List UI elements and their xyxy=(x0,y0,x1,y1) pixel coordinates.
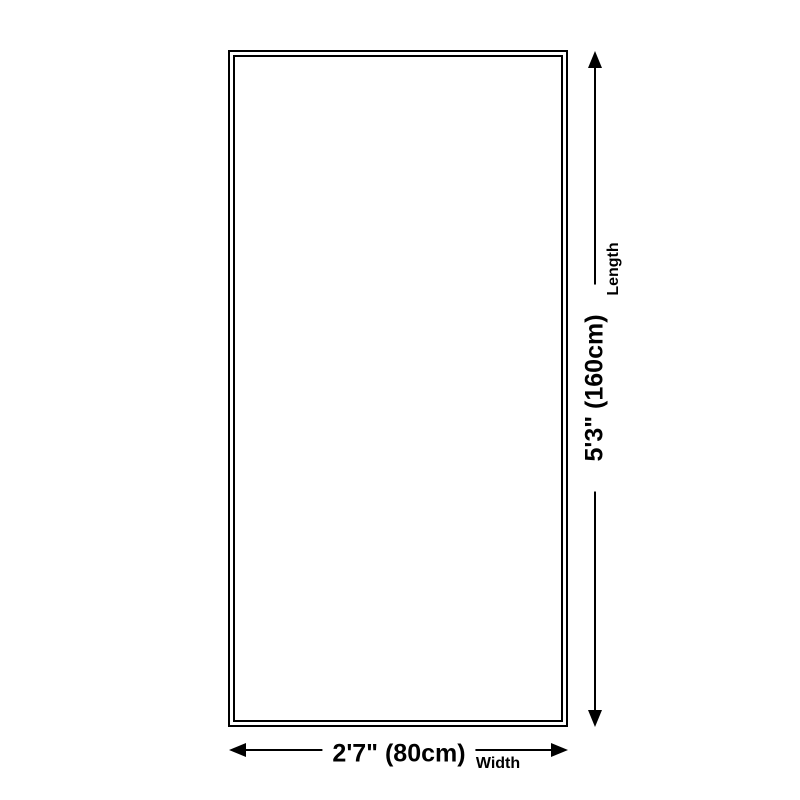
length-axis-label: Length xyxy=(605,242,623,295)
product-dimension-diagram: 5'3" (160cm) Length 2'7" (80cm) Width xyxy=(0,0,800,800)
arrow-left-icon xyxy=(229,743,246,757)
width-axis-label: Width xyxy=(476,755,520,773)
rug-outline xyxy=(228,50,568,727)
length-value-label: 5'3" (160cm) xyxy=(581,284,610,491)
rug-outline-inner-border xyxy=(233,55,563,722)
arrow-down-icon xyxy=(588,710,602,727)
width-value-label: 2'7" (80cm) xyxy=(322,740,475,769)
arrow-up-icon xyxy=(588,51,602,68)
arrow-right-icon xyxy=(551,743,568,757)
